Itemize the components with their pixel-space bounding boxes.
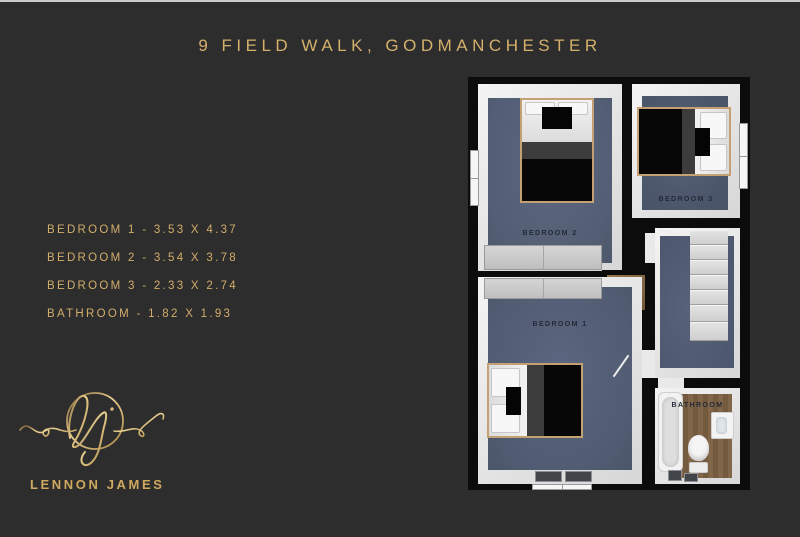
dimension-item-bedroom1: BEDROOM 1 - 3.53 X 4.37 xyxy=(47,216,238,244)
bedroom2-label: BEDROOM 2 xyxy=(478,230,622,237)
top-edge-strip xyxy=(0,0,800,2)
staircase xyxy=(690,230,728,341)
page-root: { "header": { "title": "9 FIELD WALK, GO… xyxy=(0,0,800,537)
page-title: 9 FIELD WALK, GODMANCHESTER xyxy=(0,36,800,56)
bedroom1-rug xyxy=(535,471,562,482)
bedroom2-window xyxy=(470,150,479,206)
bedroom2-wardrobe xyxy=(484,245,602,270)
bedroom1-wardrobe xyxy=(484,278,602,299)
bath-mat xyxy=(668,470,682,481)
floorplan-image: BEDROOM 2 BEDROOM 3 xyxy=(468,77,750,490)
door-gap-bathroom xyxy=(658,378,684,388)
bedroom1-bed xyxy=(487,363,583,438)
bedroom3-label: BEDROOM 3 xyxy=(632,196,740,203)
room-dimensions-list: BEDROOM 1 - 3.53 X 4.37 BEDROOM 2 - 3.54… xyxy=(47,216,238,328)
door-gap-landing xyxy=(645,233,655,263)
room-bathroom: BATHROOM xyxy=(655,388,740,484)
landing xyxy=(655,228,740,378)
bedroom2-bed xyxy=(520,98,594,203)
bedroom3-window xyxy=(739,123,748,189)
dimension-item-bathroom: BATHROOM - 1.82 X 1.93 xyxy=(47,300,238,328)
bathroom-label: BATHROOM xyxy=(655,402,740,409)
lennon-james-logo-icon xyxy=(15,368,185,476)
brand-name: LENNON JAMES xyxy=(30,477,165,492)
bedroom3-bed xyxy=(637,107,731,176)
sink xyxy=(711,412,734,439)
dimension-item-bedroom2: BEDROOM 2 - 3.54 X 3.78 xyxy=(47,244,238,272)
j-dot xyxy=(110,407,114,411)
toilet-cistern xyxy=(689,462,708,473)
dimension-item-bedroom3: BEDROOM 3 - 2.33 X 2.74 xyxy=(47,272,238,300)
bedroom1-label: BEDROOM 1 xyxy=(478,321,642,328)
bath-mat xyxy=(684,473,698,482)
bedroom1-window xyxy=(532,484,592,490)
toilet xyxy=(688,435,709,461)
bedroom1-rug xyxy=(565,471,592,482)
door-gap-bedroom1 xyxy=(642,350,655,378)
